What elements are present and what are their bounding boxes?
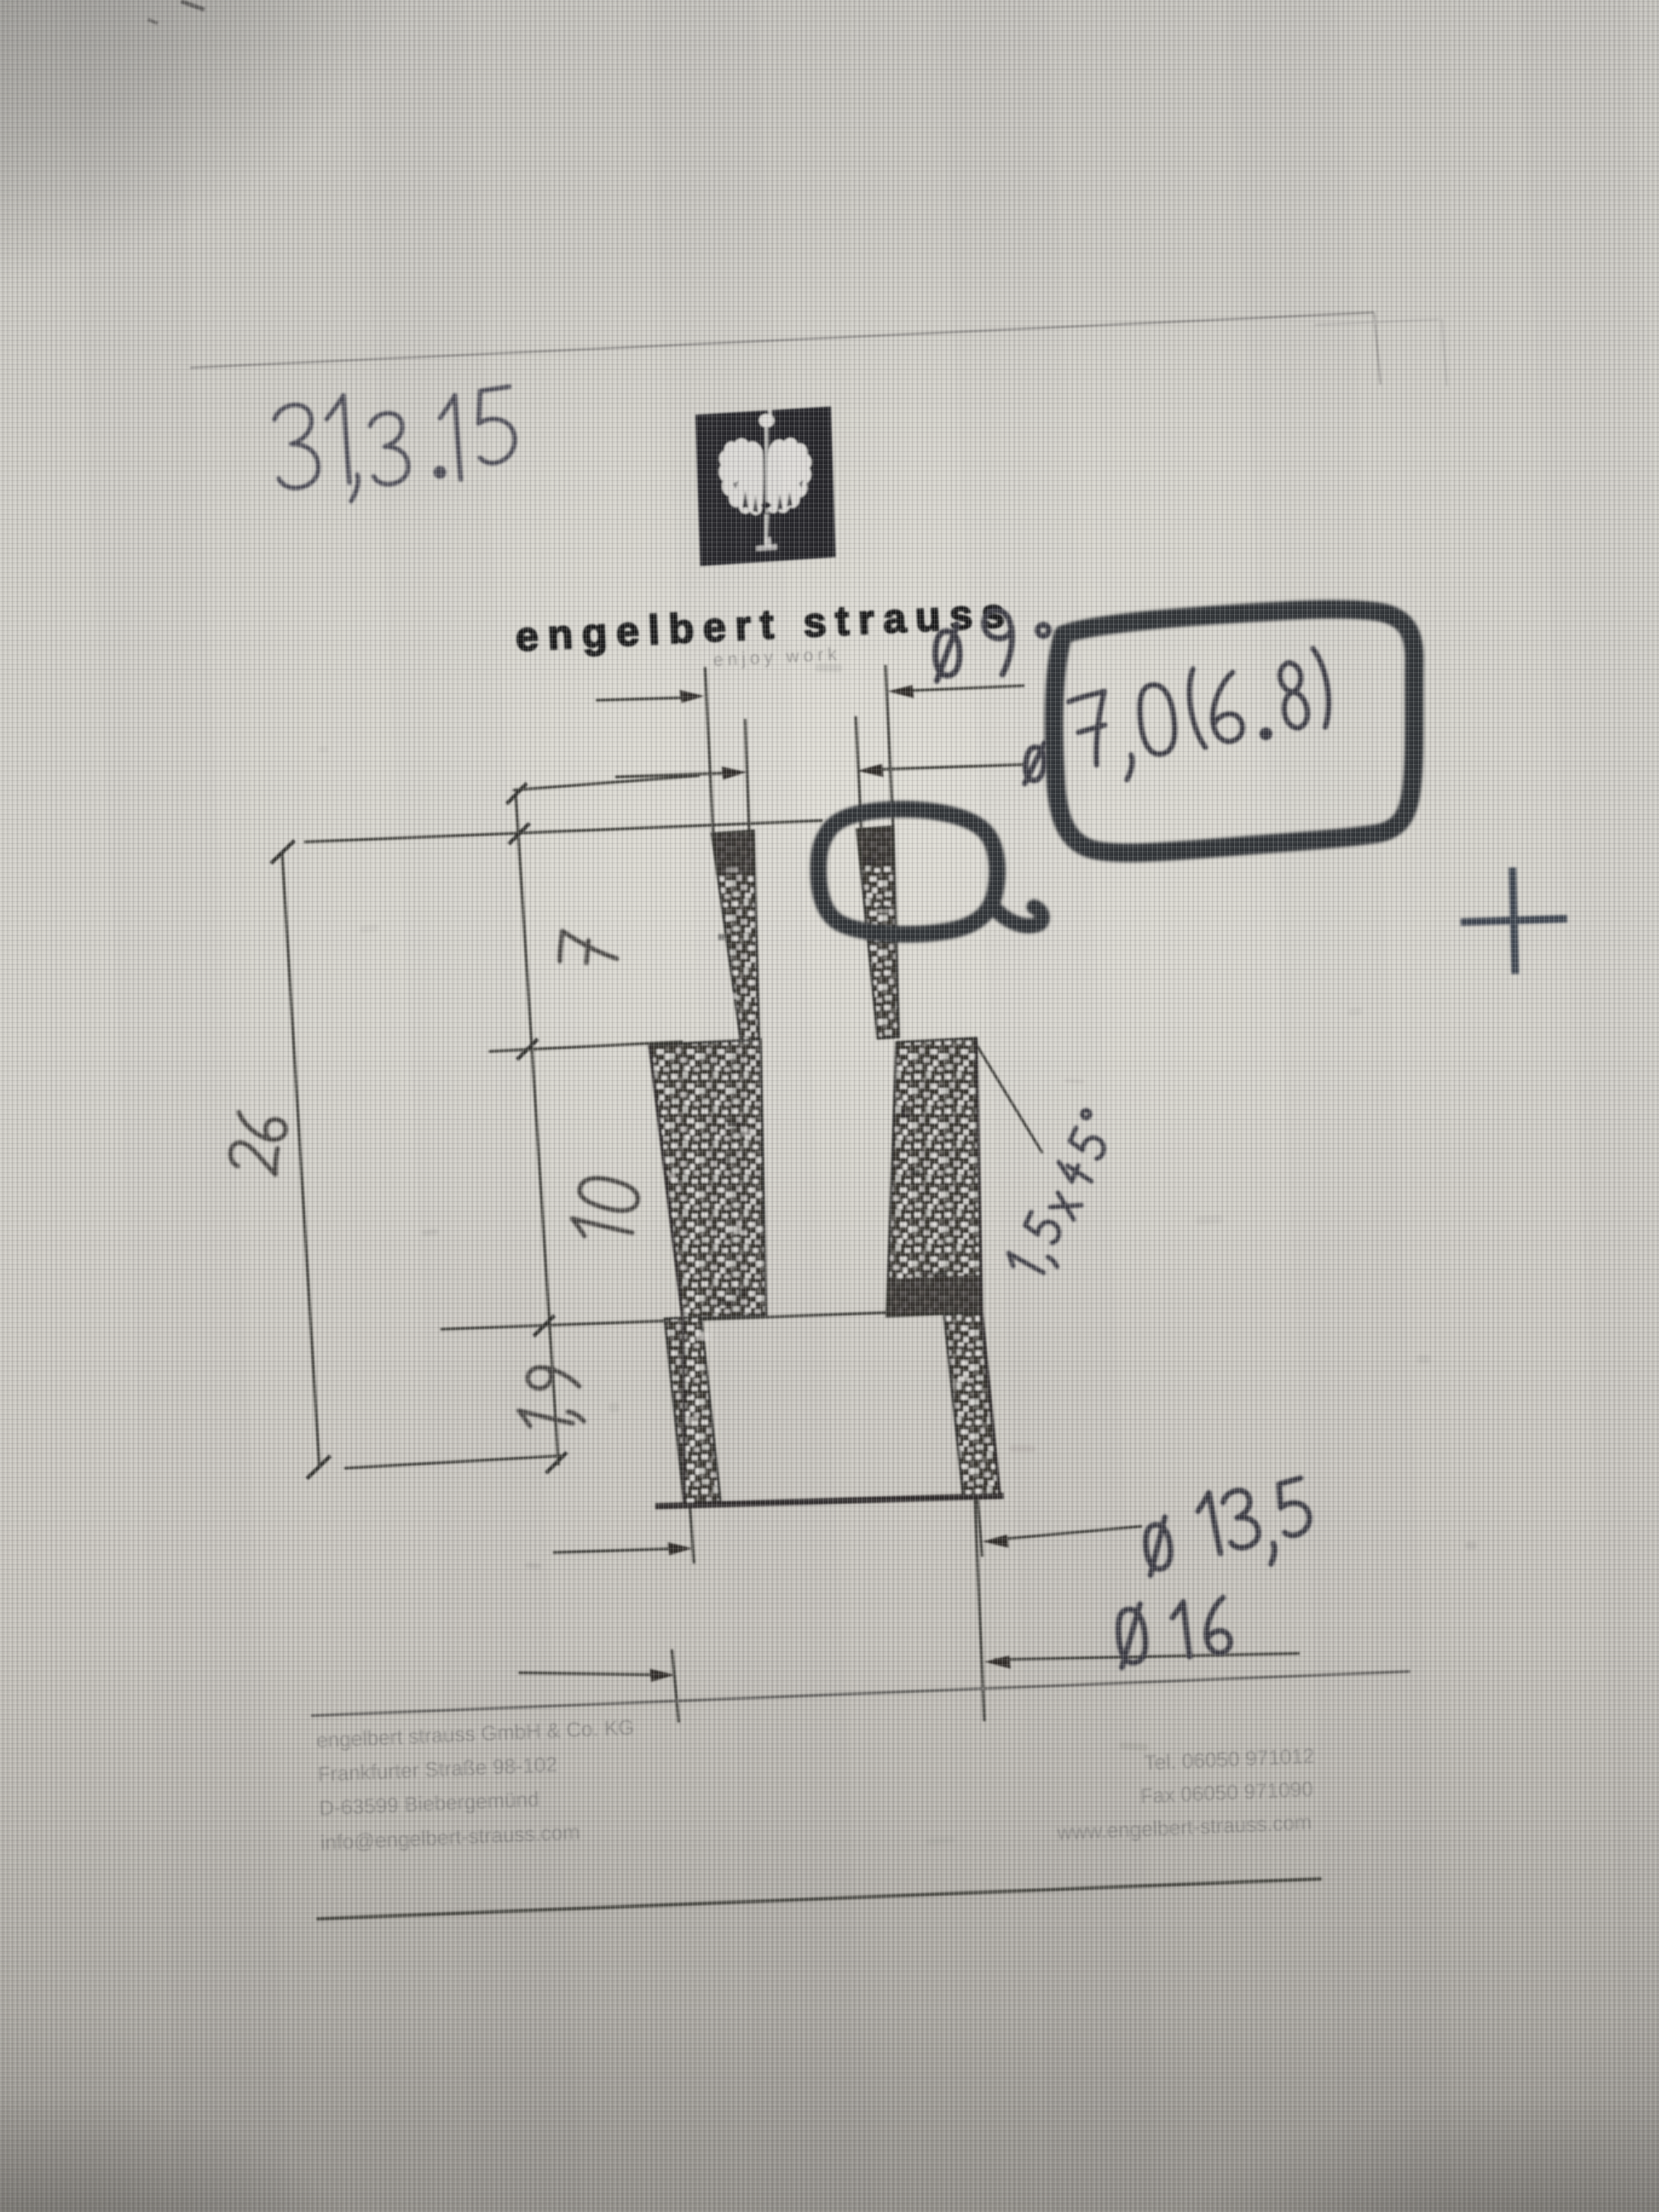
- svg-text:info@engelbert-strauss.com: info@engelbert-strauss.com: [320, 1821, 581, 1855]
- svg-text:Fax 06050 971090: Fax 06050 971090: [1140, 1778, 1313, 1808]
- svg-text:Frankfurter Straße 98-102: Frankfurter Straße 98-102: [317, 1753, 558, 1785]
- svg-text:Tel. 06050 971012: Tel. 06050 971012: [1143, 1745, 1315, 1774]
- svg-text:www.engelbert-strauss.com: www.engelbert-strauss.com: [1056, 1811, 1313, 1844]
- svg-text:engelbert strauss GmbH & Co. K: engelbert strauss GmbH & Co. KG: [316, 1716, 635, 1752]
- svg-text:D-63599 Biebergemünd: D-63599 Biebergemünd: [319, 1788, 540, 1820]
